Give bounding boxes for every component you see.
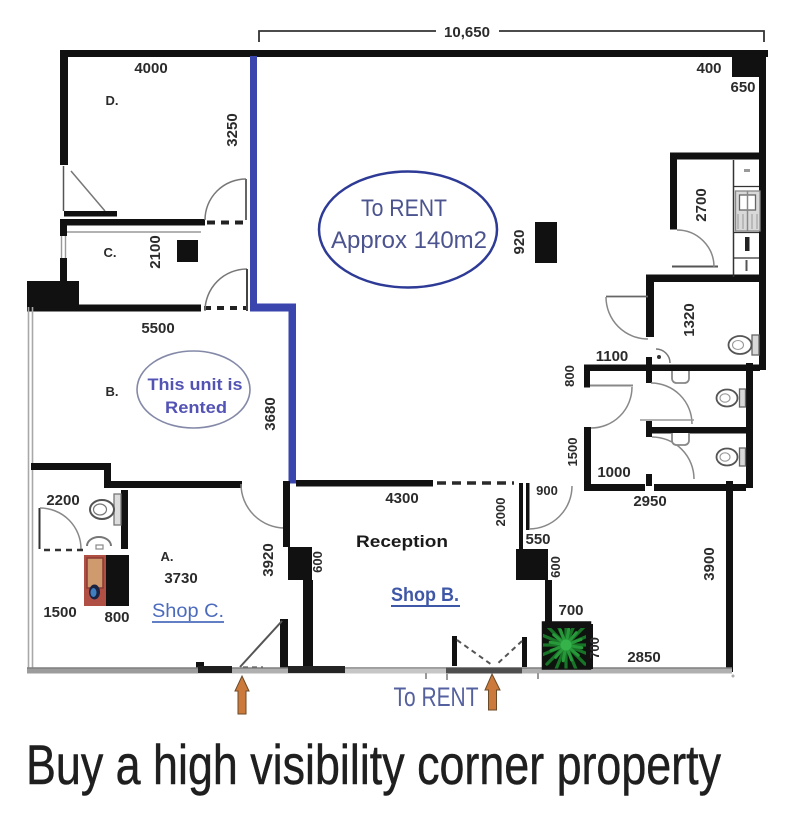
svg-text:A.: A. <box>161 549 174 564</box>
svg-text:4000: 4000 <box>134 60 167 77</box>
svg-text:1500: 1500 <box>565 438 580 467</box>
svg-text:Reception: Reception <box>356 533 448 551</box>
svg-text:1320: 1320 <box>681 303 698 336</box>
svg-text:To RENT: To RENT <box>361 195 447 222</box>
svg-text:800: 800 <box>104 609 129 626</box>
svg-text:3730: 3730 <box>164 570 197 587</box>
svg-text:2200: 2200 <box>46 492 79 509</box>
svg-text:800: 800 <box>562 365 577 387</box>
svg-text:Approx 140m2: Approx 140m2 <box>331 227 487 254</box>
svg-text:2700: 2700 <box>693 188 710 221</box>
svg-text:Shop C.: Shop C. <box>152 601 224 622</box>
svg-text:C.: C. <box>104 245 117 260</box>
svg-text:3900: 3900 <box>701 547 718 580</box>
svg-text:B.: B. <box>106 384 119 399</box>
svg-text:Rented: Rented <box>165 398 227 417</box>
svg-text:1000: 1000 <box>597 464 630 481</box>
svg-text:700: 700 <box>558 602 583 619</box>
svg-text:Buy a high visibility corner p: Buy a high visibility corner property <box>26 733 721 796</box>
svg-text:10,650: 10,650 <box>444 24 490 41</box>
svg-text:4300: 4300 <box>385 490 418 507</box>
svg-text:600: 600 <box>310 551 325 573</box>
svg-text:2100: 2100 <box>147 235 164 268</box>
svg-text:650: 650 <box>730 79 755 96</box>
svg-text:Shop B.: Shop B. <box>391 585 459 606</box>
svg-text:600: 600 <box>548 556 563 578</box>
svg-text:2000: 2000 <box>493 498 508 527</box>
svg-text:This unit is: This unit is <box>148 375 243 394</box>
svg-text:3250: 3250 <box>224 113 241 146</box>
svg-text:900: 900 <box>536 483 558 498</box>
svg-text:To RENT: To RENT <box>394 682 479 712</box>
svg-text:1100: 1100 <box>596 348 629 365</box>
svg-text:3920: 3920 <box>260 543 277 576</box>
svg-text:2950: 2950 <box>633 493 666 510</box>
svg-text:5500: 5500 <box>141 320 174 337</box>
svg-text:400: 400 <box>696 60 721 77</box>
svg-text:1500: 1500 <box>43 604 76 621</box>
svg-text:700: 700 <box>587 637 602 659</box>
svg-text:550: 550 <box>525 531 550 548</box>
svg-text:3680: 3680 <box>262 397 279 430</box>
svg-text:920: 920 <box>511 229 528 254</box>
svg-text:2850: 2850 <box>627 649 660 666</box>
svg-text:D.: D. <box>106 93 119 108</box>
